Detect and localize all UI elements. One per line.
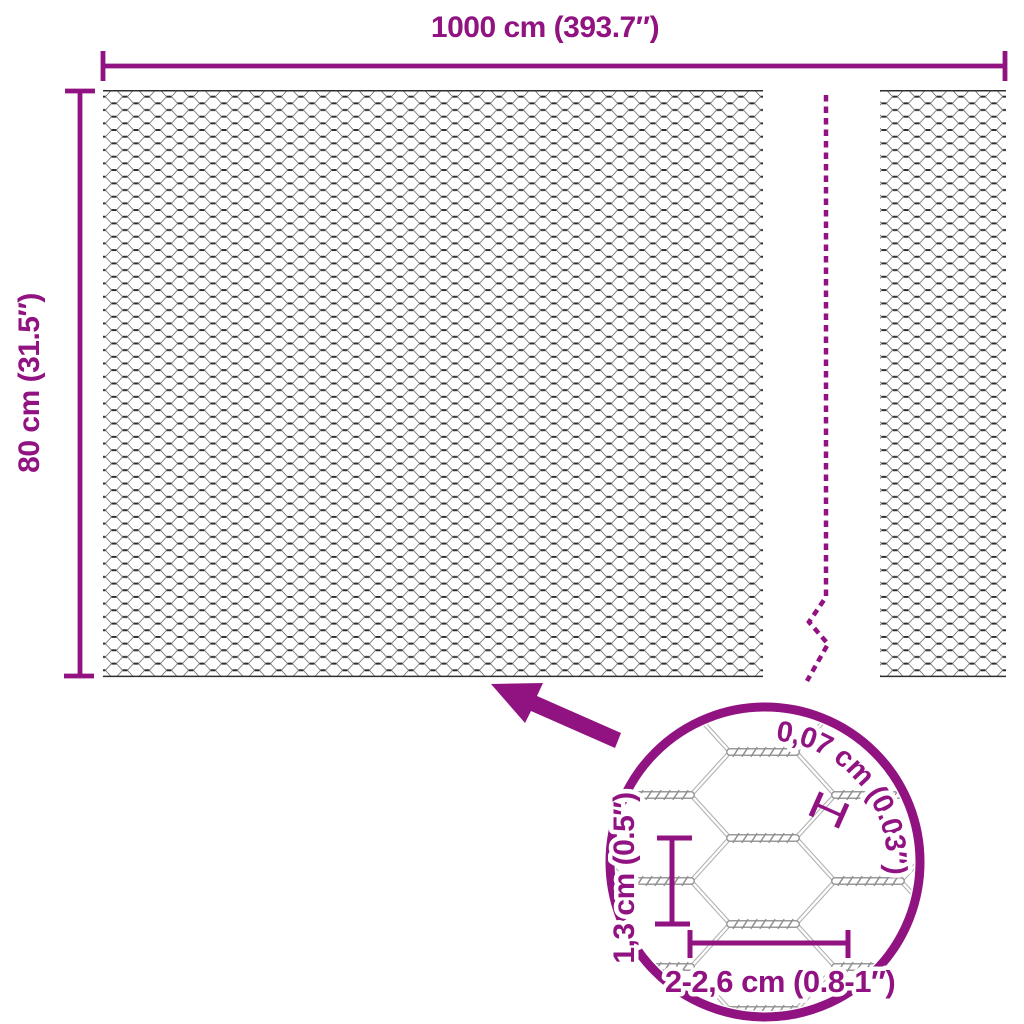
product-dimension-diagram: 1000 cm (393.7″) 80 cm (31.5″) 0,07 cm (… (0, 0, 1024, 1024)
height-dimension-line (64, 91, 95, 676)
mesh-panel-left (103, 90, 763, 677)
zoom-arrow-icon (491, 683, 621, 748)
height-dimension: 80 cm (31.5″) (13, 91, 95, 676)
diagram-canvas: 1000 cm (393.7″) 80 cm (31.5″) 0,07 cm (… (0, 0, 1024, 1024)
cell-width-dimension: 2-2,6 cm (0.8-1″) (665, 930, 895, 999)
width-dimension: 1000 cm (393.7″) (103, 11, 1005, 81)
break-line (807, 95, 828, 681)
cell-width-label: 2-2,6 cm (0.8-1″) (665, 964, 895, 999)
width-dimension-line (103, 51, 1005, 81)
mesh-panel-right (880, 90, 1006, 677)
height-dimension-label: 80 cm (31.5″) (13, 293, 46, 473)
cell-height-label: 1,3 cm (0.5″) (608, 792, 641, 963)
width-dimension-label: 1000 cm (393.7″) (431, 11, 659, 44)
